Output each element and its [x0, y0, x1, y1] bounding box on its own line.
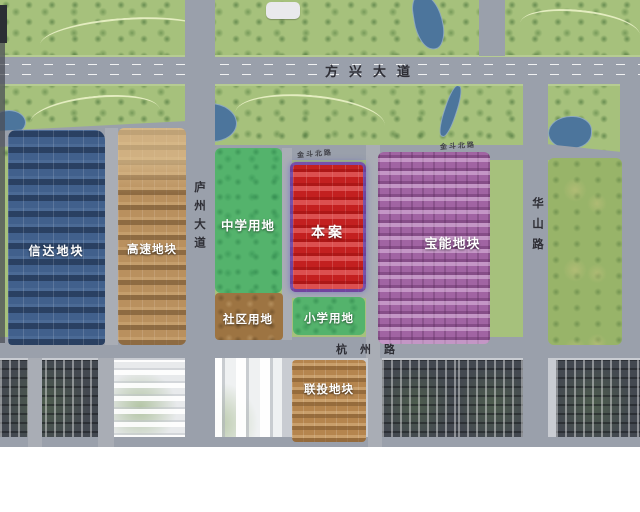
road-right-edge [620, 82, 640, 347]
white-structure [266, 2, 300, 19]
lane-marking [0, 64, 640, 65]
lane-marking [0, 74, 640, 75]
city-block [0, 360, 98, 440]
road-label-hangzhou: 杭州路 [336, 341, 408, 357]
road-label-fangxing: 方兴大道 [325, 61, 421, 80]
city-block [382, 360, 458, 440]
road-city-vertical [98, 358, 114, 447]
road-huashan [523, 82, 548, 447]
city-block [114, 360, 188, 440]
parcel-xinda [8, 130, 105, 345]
road-city-vertical [28, 358, 42, 447]
planning-map: 信达地块 高速地块 中学用地 社区用地 本案 小学用地 宝能地块 联投地块 方兴… [0, 0, 640, 447]
parcel-east-meadow [548, 158, 622, 345]
parcel-label-zhongxue: 中学用地 [213, 215, 283, 234]
parcel-label-liantou: 联投地块 [290, 381, 368, 397]
map-edge-strip [0, 43, 5, 343]
map-edge-dark [0, 5, 7, 43]
parcel-label-baoneng: 宝能地块 [395, 233, 510, 252]
road-vertical-top [479, 0, 505, 56]
parcel-liantou [292, 360, 366, 442]
parcel-label-xinda: 信达地块 [8, 242, 105, 259]
screenshot-stage: 信达地块 高速地块 中学用地 社区用地 本案 小学用地 宝能地块 联投地块 方兴… [0, 0, 640, 512]
parcel-label-benan: 本案 [290, 222, 366, 242]
road-city-vertical [368, 358, 382, 447]
parcel-label-shequ: 社区用地 [213, 311, 283, 327]
parcel-label-gaosu: 高速地块 [118, 241, 186, 257]
caption-band: 合肥楼市 拟新建滨湖BH2016-10地块规划区位图 头条号 / 合肥楼市点评 [0, 447, 640, 512]
city-block [556, 360, 640, 440]
road-between-xinda-gaosu [105, 128, 118, 345]
parcel-gaosu [118, 128, 186, 345]
road-label-huashan: 华山路 [529, 197, 545, 259]
road-label-luzhou: 庐州大道 [191, 181, 207, 255]
parcel-label-xiaoxue: 小学用地 [292, 310, 366, 326]
